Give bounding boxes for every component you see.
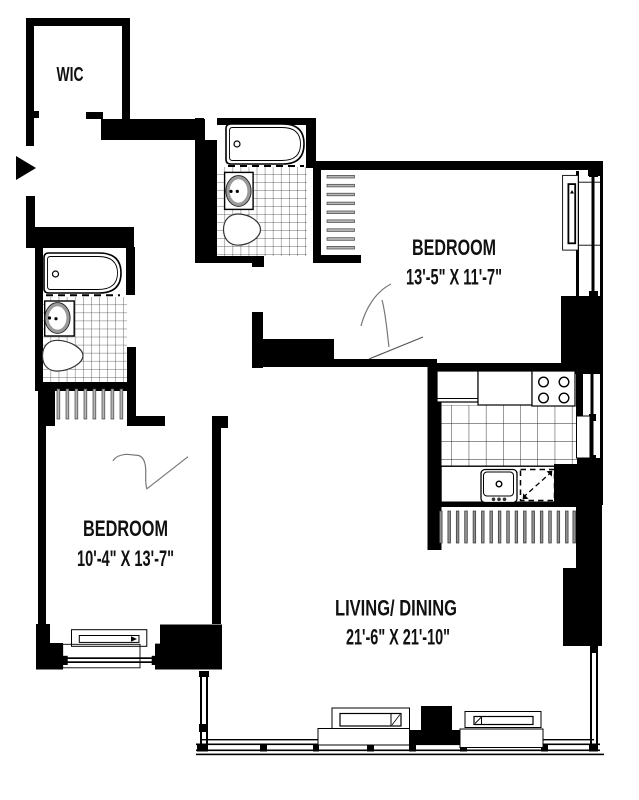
svg-text:WIC: WIC xyxy=(57,64,84,86)
svg-text:21'-6" X 21'-10": 21'-6" X 21'-10" xyxy=(346,625,450,650)
svg-text:BEDROOM: BEDROOM xyxy=(83,516,168,541)
svg-text:10'-4" X 13'-7": 10'-4" X 13'-7" xyxy=(77,546,174,571)
svg-text:BEDROOM: BEDROOM xyxy=(412,235,496,260)
svg-text:LIVING/ DINING: LIVING/ DINING xyxy=(335,596,457,621)
svg-text:13'-5" X 11'-7": 13'-5" X 11'-7" xyxy=(406,265,502,290)
